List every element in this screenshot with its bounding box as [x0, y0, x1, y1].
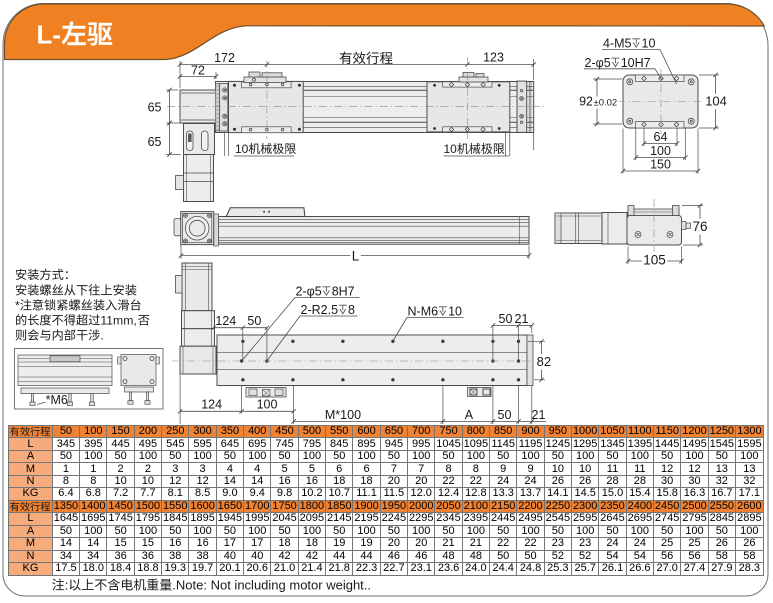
- svg-text:92: 92: [579, 95, 593, 109]
- svg-text:8H7: 8H7: [332, 285, 355, 299]
- svg-text:64: 64: [654, 130, 668, 144]
- svg-text:172: 172: [214, 51, 235, 65]
- svg-text:100: 100: [650, 144, 671, 158]
- svg-text:72: 72: [191, 64, 205, 78]
- svg-text:L: L: [352, 249, 360, 264]
- svg-text:.: .: [100, 329, 103, 343]
- svg-text:2-φ5: 2-φ5: [296, 285, 322, 299]
- svg-text:±0.02: ±0.02: [594, 98, 618, 109]
- svg-text:82: 82: [537, 354, 551, 369]
- svg-text:123: 123: [483, 51, 504, 65]
- svg-text:2-φ5: 2-φ5: [585, 56, 611, 70]
- svg-text:21: 21: [532, 408, 546, 422]
- svg-text:*M6: *M6: [46, 393, 68, 407]
- svg-text:76: 76: [693, 219, 708, 234]
- svg-text:8: 8: [348, 303, 355, 317]
- svg-text:50: 50: [499, 312, 513, 326]
- svg-text:N-M6: N-M6: [408, 305, 439, 319]
- svg-text:124: 124: [215, 314, 236, 328]
- svg-text:11mm,: 11mm,: [100, 314, 136, 328]
- svg-text:100: 100: [257, 398, 278, 412]
- svg-text:*: *: [15, 299, 20, 313]
- svg-text:104: 104: [705, 94, 727, 109]
- svg-text:10: 10: [642, 37, 656, 51]
- svg-text:L-: L-: [37, 20, 62, 50]
- svg-text:21: 21: [515, 312, 529, 326]
- svg-text:65: 65: [148, 101, 162, 115]
- svg-text:50: 50: [247, 314, 261, 328]
- svg-text:65: 65: [148, 135, 162, 149]
- svg-text:2-R2.5: 2-R2.5: [301, 303, 339, 317]
- svg-text:10: 10: [444, 142, 458, 156]
- svg-text:10: 10: [448, 305, 462, 319]
- svg-text:10H7: 10H7: [621, 56, 651, 70]
- svg-text:4-M5: 4-M5: [603, 37, 632, 51]
- svg-text::: :: [65, 578, 69, 593]
- svg-text:150: 150: [650, 158, 671, 172]
- svg-text:124: 124: [201, 398, 222, 412]
- svg-text:105: 105: [643, 253, 666, 268]
- svg-text:10: 10: [235, 142, 249, 156]
- svg-text:50: 50: [498, 408, 512, 422]
- svg-text:.Note: Not including motor wei: .Note: Not including motor weight..: [172, 578, 371, 593]
- svg-text:M*100: M*100: [325, 408, 361, 422]
- svg-text:A: A: [465, 408, 474, 422]
